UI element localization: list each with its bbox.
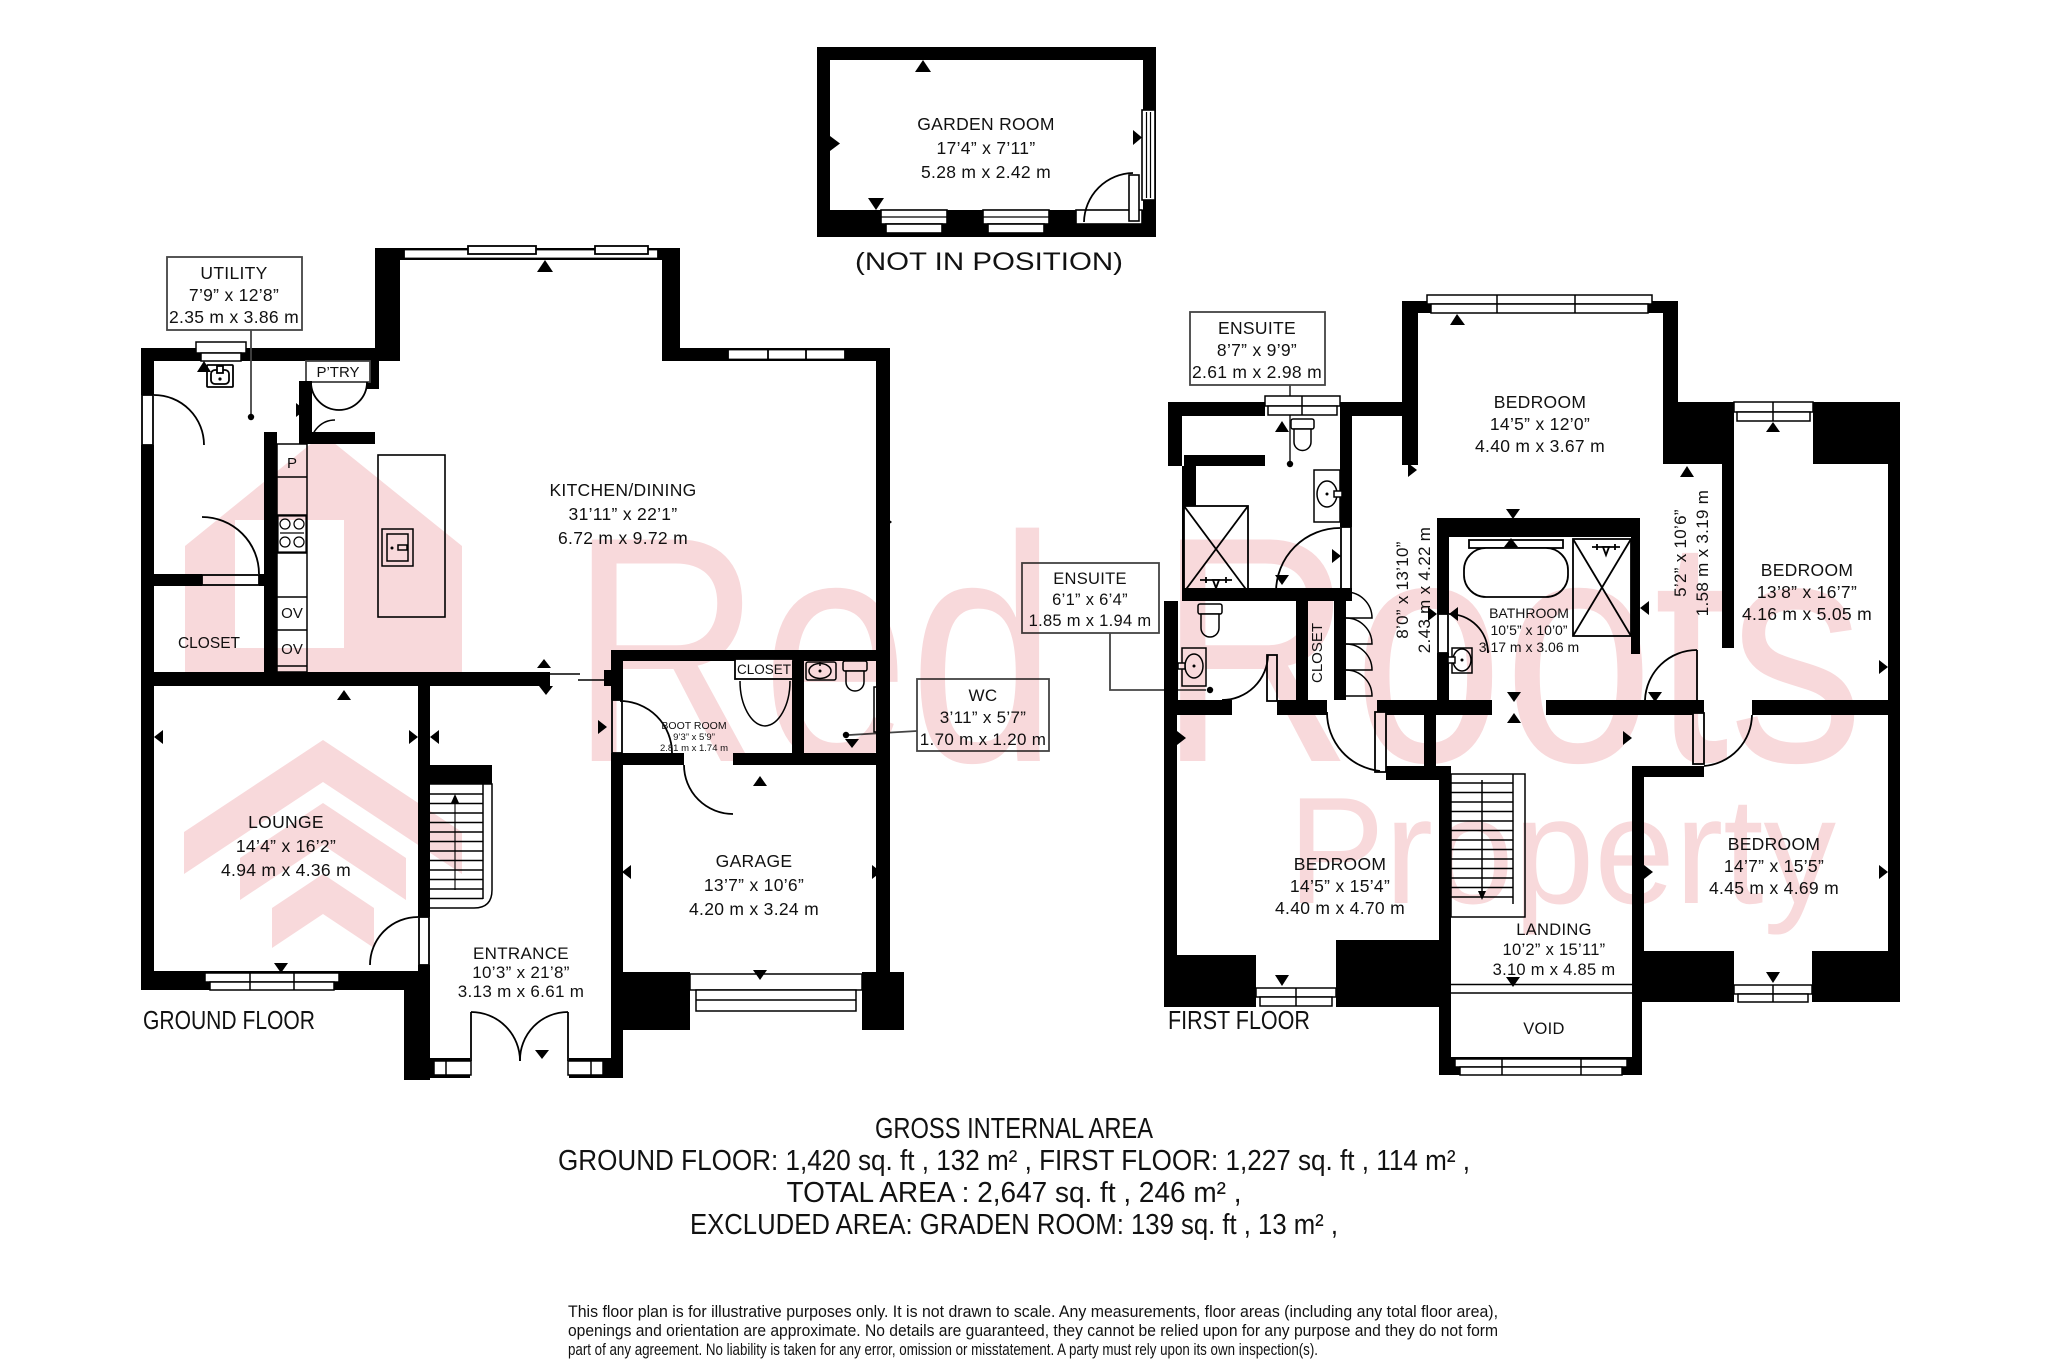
svg-text:ENSUITE: ENSUITE xyxy=(1218,318,1296,338)
svg-text:4.20 m x 3.24 m: 4.20 m x 3.24 m xyxy=(689,899,819,919)
svg-text:4.40 m x 3.67 m: 4.40 m x 3.67 m xyxy=(1475,436,1605,456)
svg-text:part of any agreement. No liab: part of any agreement. No liability is t… xyxy=(568,1341,1318,1359)
svg-text:Red: Red xyxy=(570,471,1057,830)
svg-text:14’5” x 12’0”: 14’5” x 12’0” xyxy=(1490,414,1590,434)
svg-text:GARAGE: GARAGE xyxy=(716,851,793,871)
svg-text:GROUND FLOOR: GROUND FLOOR xyxy=(143,1005,315,1035)
svg-text:This floor plan is for illustr: This floor plan is for illustrative purp… xyxy=(568,1303,1498,1321)
svg-text:2.35 m x 3.86 m: 2.35 m x 3.86 m xyxy=(169,307,299,327)
svg-text:5.28 m x 2.42 m: 5.28 m x 2.42 m xyxy=(921,162,1051,182)
svg-text:(NOT IN POSITION): (NOT IN POSITION) xyxy=(855,248,1123,276)
svg-text:3.10 m x 4.85 m: 3.10 m x 4.85 m xyxy=(1493,961,1616,979)
svg-text:3.13 m x 6.61 m: 3.13 m x 6.61 m xyxy=(458,982,584,1001)
svg-text:GROUND FLOOR: 1,420 sq. ft , 1: GROUND FLOOR: 1,420 sq. ft , 132 m² , FI… xyxy=(558,1145,1470,1177)
svg-text:BEDROOM: BEDROOM xyxy=(1494,392,1587,412)
svg-text:OV: OV xyxy=(281,605,303,622)
svg-text:10’2” x 15’11”: 10’2” x 15’11” xyxy=(1503,941,1606,959)
svg-text:17’4” x 7’11”: 17’4” x 7’11” xyxy=(937,138,1036,158)
svg-text:ENTRANCE: ENTRANCE xyxy=(473,944,569,963)
svg-text:GROSS INTERNAL AREA: GROSS INTERNAL AREA xyxy=(875,1113,1154,1145)
svg-text:openings and orientation are a: openings and orientation are approximate… xyxy=(568,1322,1498,1340)
svg-text:Property: Property xyxy=(1288,766,1836,936)
svg-text:EXCLUDED AREA: GRADEN ROOM: 13: EXCLUDED AREA: GRADEN ROOM: 139 sq. ft ,… xyxy=(690,1209,1338,1241)
svg-text:FIRST FLOOR: FIRST FLOOR xyxy=(1168,1005,1310,1035)
svg-text:8’7” x 9’9”: 8’7” x 9’9” xyxy=(1217,340,1297,360)
svg-text:7’9” x 12’8”: 7’9” x 12’8” xyxy=(189,285,279,305)
svg-text:UTILITY: UTILITY xyxy=(200,263,267,283)
svg-text:VOID: VOID xyxy=(1523,1020,1565,1038)
svg-text:ENSUITE: ENSUITE xyxy=(1053,570,1127,588)
svg-text:TOTAL AREA : 2,647 sq. ft , 24: TOTAL AREA : 2,647 sq. ft , 246 m² , xyxy=(787,1177,1242,1209)
svg-text:13’7” x 10’6”: 13’7” x 10’6” xyxy=(704,875,804,895)
svg-text:6’1” x 6’4”: 6’1” x 6’4” xyxy=(1052,591,1128,609)
svg-text:P’TRY: P’TRY xyxy=(316,364,359,381)
svg-text:GARDEN ROOM: GARDEN ROOM xyxy=(917,114,1054,134)
svg-text:2.61 m x 2.98 m: 2.61 m x 2.98 m xyxy=(1192,362,1322,382)
svg-text:10’3” x 21’8”: 10’3” x 21’8” xyxy=(472,963,569,982)
